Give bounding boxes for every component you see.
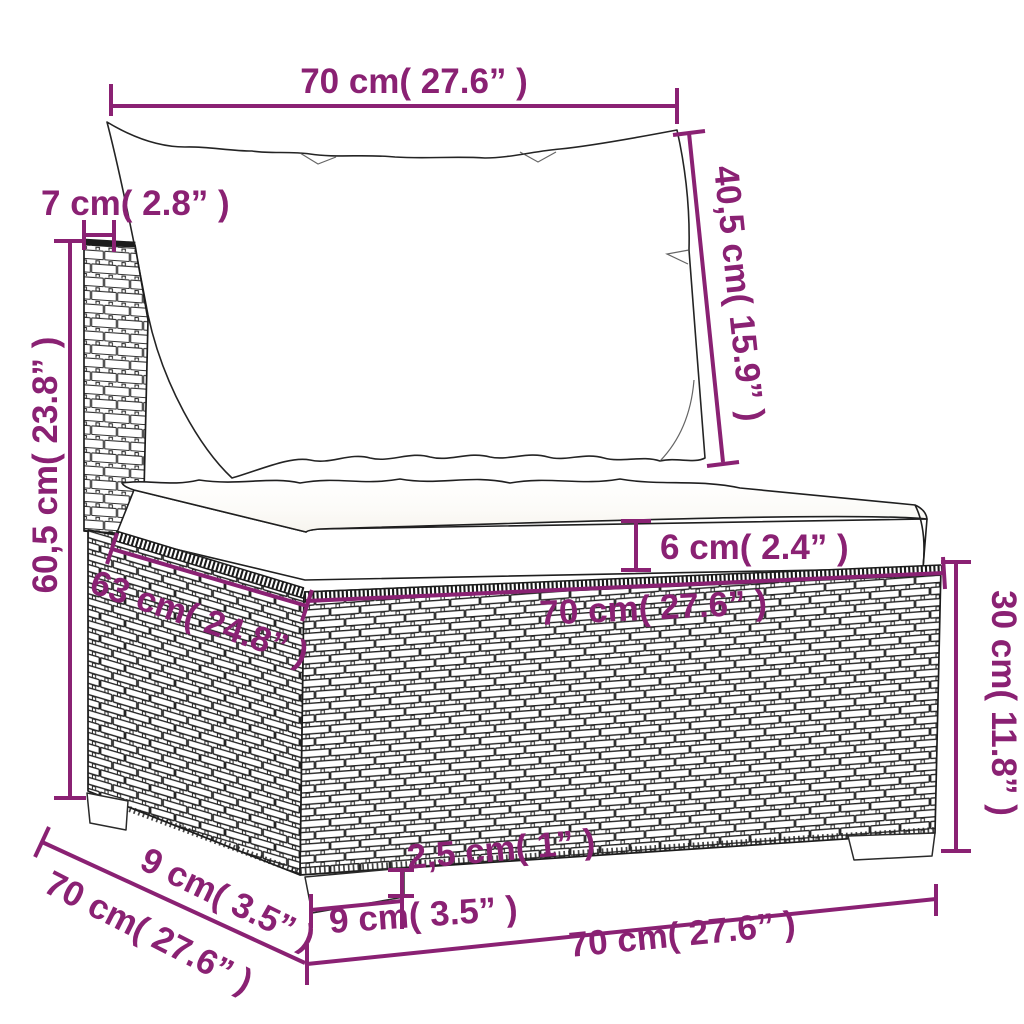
svg-text:30 cm( 11.8” ): 30 cm( 11.8” ) — [984, 590, 1023, 816]
svg-text:7 cm( 2.8” ): 7 cm( 2.8” ) — [41, 184, 230, 223]
svg-text:6 cm( 2.4” ): 6 cm( 2.4” ) — [660, 528, 849, 567]
svg-text:70 cm( 27.6” ): 70 cm( 27.6” ) — [300, 62, 528, 101]
svg-text:60,5 cm( 23.8” ): 60,5 cm( 23.8” ) — [26, 337, 65, 594]
